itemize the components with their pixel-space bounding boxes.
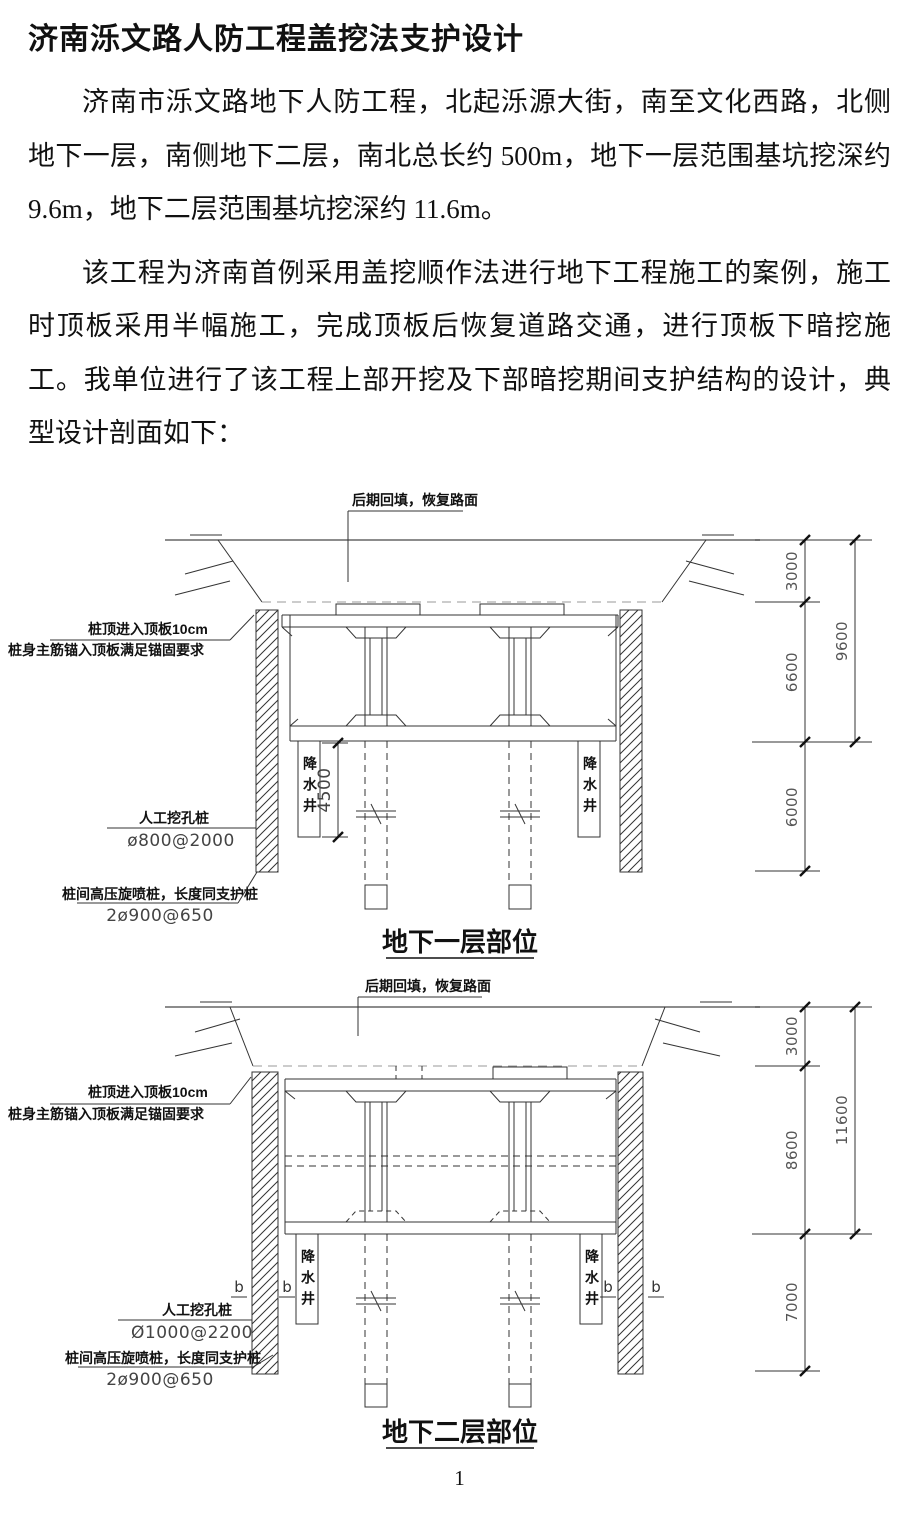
backfill-leader: 后期回填，恢复路面 (348, 492, 478, 582)
figure-basement-level2-section: 后期回填，恢复路面 (0, 964, 919, 1464)
structure-side-walls (290, 615, 616, 741)
roof-slab (285, 1066, 616, 1102)
figure-caption: 地下二层部位 (382, 1417, 538, 1448)
foundation-piles (356, 741, 540, 909)
section-mark-b: b (234, 1278, 244, 1296)
left-annotations: 桩顶进入顶板10cm 桩身主筋锚入顶板满足锚固要求 人工挖孔桩 Ø1000@22… (8, 1077, 273, 1390)
page-title: 济南泺文路人防工程盖挖法支护设计 (28, 14, 891, 58)
page-number: 1 (0, 1466, 919, 1491)
left-annotations: 桩顶进入顶板10cm 桩身主筋锚入顶板满足锚固要求 人工挖孔桩 ø800@200… (8, 615, 258, 926)
pile-top-note-1: 桩顶进入顶板10cm (88, 1084, 208, 1100)
jet-grouting-label: 桩间高压旋喷桩，长度同支护桩 (62, 886, 258, 902)
paragraph-2: 该工程为济南首例采用盖挖顺作法进行地下工程施工的案例，施工时顶板采用半幅施工，完… (28, 247, 891, 461)
dim-middle: 8600 (783, 1130, 801, 1170)
figure-basement-level1-section: 后期回填，恢复路面 (0, 474, 919, 974)
dim-overall: 9600 (833, 621, 851, 661)
roof-slab (282, 604, 618, 638)
jet-grouting-spec: 2ø900@650 (106, 1370, 214, 1390)
caption-text: 地下一层部位 (382, 927, 538, 957)
well-label-right: 降水井 (578, 756, 600, 819)
base-slab (285, 1211, 616, 1234)
dim-bottom: 7000 (783, 1282, 801, 1322)
well-label-right: 降水井 (580, 1249, 602, 1312)
pile-top-note-1: 桩顶进入顶板10cm (88, 621, 208, 637)
pile-top-note-2: 桩身主筋锚入顶板满足锚固要求 (8, 1106, 205, 1122)
right-dimension-lines: 3000 8600 11600 7000 (752, 1002, 872, 1376)
backfill-label: 后期回填，恢复路面 (352, 492, 478, 508)
dim-overall: 11600 (833, 1095, 851, 1145)
base-slab (290, 715, 616, 741)
backfill-label: 后期回填，恢复路面 (365, 978, 491, 994)
hand-dug-pile-spec: Ø1000@2200 (131, 1323, 253, 1343)
figure-caption: 地下一层部位 (382, 927, 538, 958)
retaining-pile-walls (252, 1072, 643, 1374)
right-dimension-lines: 3000 6600 9600 6000 (752, 535, 872, 876)
caption-text: 地下二层部位 (382, 1417, 538, 1447)
hand-dug-pile-label: 人工挖孔桩 (139, 810, 209, 826)
section-mark-b: b (603, 1278, 613, 1296)
hand-dug-pile-label: 人工挖孔桩 (162, 1302, 232, 1318)
pile-top-note-2: 桩身主筋锚入顶板满足锚固要求 (8, 642, 205, 658)
well-label-left: 降水井 (298, 756, 320, 819)
columns (365, 1102, 531, 1222)
dewatering-wells (298, 741, 600, 837)
jet-grouting-label: 桩间高压旋喷桩，长度同支护桩 (65, 1350, 261, 1366)
dim-top: 3000 (783, 1016, 801, 1056)
section-mark-b: b (651, 1278, 661, 1296)
foundation-piles (356, 1234, 540, 1407)
dim-middle: 6600 (783, 652, 801, 692)
hand-dug-pile-spec: ø800@2000 (127, 831, 235, 851)
middle-slab (285, 1156, 616, 1166)
section-mark-b: b (282, 1278, 292, 1296)
jet-grouting-spec: 2ø900@650 (106, 906, 214, 926)
ground-and-slopes (165, 535, 760, 602)
document-page: { "page": {"number": "1"}, "document": {… (0, 14, 919, 1514)
dewatering-wells (296, 1234, 602, 1324)
paragraph-1: 济南市泺文路地下人防工程，北起泺源大街，南至文化西路，北侧地下一层，南侧地下二层… (28, 76, 891, 237)
dim-top: 3000 (783, 551, 801, 591)
ground-and-slopes (165, 1002, 760, 1066)
well-label-left: 降水井 (296, 1249, 318, 1312)
dim-bottom: 6000 (783, 787, 801, 827)
columns (365, 627, 531, 726)
